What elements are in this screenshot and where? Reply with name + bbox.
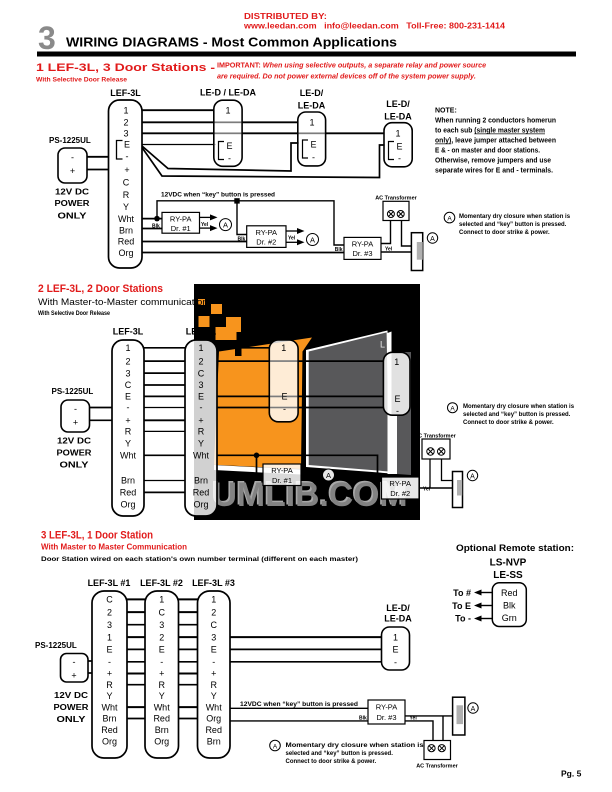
- svg-text:selected and “key” button is p: selected and “key” button is pressed.: [463, 412, 571, 418]
- svg-text:Wht: Wht: [193, 451, 210, 461]
- svg-text:Pg. 5: Pg. 5: [561, 769, 582, 779]
- svg-text:Yel: Yel: [423, 487, 431, 493]
- svg-text:Grn: Grn: [502, 613, 517, 623]
- svg-text:Red: Red: [193, 488, 210, 498]
- svg-text:Red: Red: [501, 588, 518, 598]
- svg-text:1: 1: [198, 343, 203, 353]
- svg-text:-: -: [283, 404, 286, 414]
- svg-text:Door Station wired on each sta: Door Station wired on each station's own…: [41, 556, 358, 563]
- svg-text:To -: To -: [455, 614, 471, 624]
- svg-text:Red: Red: [120, 488, 137, 498]
- svg-text:Yel: Yel: [410, 716, 418, 722]
- svg-text:A: A: [223, 221, 228, 230]
- svg-text:-: -: [312, 153, 315, 163]
- svg-text:Org: Org: [102, 736, 117, 746]
- svg-text:ONLY: ONLY: [58, 211, 88, 220]
- svg-text:selected and “key” button is p: selected and “key” button is pressed.: [459, 222, 567, 228]
- svg-text:PS-1225UL: PS-1225UL: [49, 136, 91, 145]
- svg-text:C: C: [123, 178, 130, 188]
- svg-text:L: L: [380, 340, 385, 350]
- svg-text:Blk: Blk: [335, 247, 343, 253]
- svg-text:POWER: POWER: [57, 449, 92, 458]
- svg-text:Y: Y: [125, 439, 131, 449]
- svg-text:2: 2: [198, 356, 203, 366]
- svg-text:LE-SS: LE-SS: [493, 570, 523, 581]
- svg-text:Org: Org: [154, 736, 169, 746]
- svg-text:DISTRIBUTED BY:: DISTRIBUTED BY:: [244, 12, 327, 21]
- svg-text:Blk: Blk: [503, 601, 516, 611]
- svg-text:2: 2: [159, 632, 164, 642]
- svg-text:With Selective Door Release: With Selective Door Release: [38, 310, 110, 317]
- svg-text:3 LEF-3L, 1 Door Station: 3 LEF-3L, 1 Door Station: [41, 530, 153, 542]
- svg-text:LE-DA: LE-DA: [298, 101, 326, 111]
- svg-text:2: 2: [211, 607, 216, 617]
- svg-text:Connect to door strike & power: Connect to door strike & power.: [459, 230, 550, 236]
- svg-text:E: E: [392, 645, 398, 655]
- svg-text:Yel: Yel: [385, 246, 393, 252]
- svg-text:1: 1: [395, 129, 400, 139]
- svg-text:ONLY: ONLY: [60, 461, 90, 470]
- svg-text:Otherwise, remove jumpers and: Otherwise, remove jumpers and use: [435, 158, 551, 165]
- svg-text:E: E: [159, 645, 165, 655]
- svg-text:-: -: [394, 658, 397, 668]
- svg-text:2: 2: [123, 118, 128, 128]
- svg-text:C: C: [106, 595, 113, 605]
- svg-text:Brn: Brn: [194, 476, 208, 486]
- svg-text:C: C: [158, 607, 165, 617]
- svg-text:-: -: [74, 404, 77, 414]
- svg-text:12V DC: 12V DC: [55, 188, 89, 197]
- svg-text:RY-PA: RY-PA: [170, 215, 192, 224]
- svg-text:-: -: [396, 406, 399, 416]
- svg-text:R: R: [106, 680, 113, 690]
- svg-text:A: A: [470, 473, 475, 480]
- svg-text:+: +: [198, 416, 203, 426]
- svg-text:Y: Y: [106, 691, 112, 701]
- svg-text:Dr. #2: Dr. #2: [390, 489, 410, 498]
- svg-text:C: C: [210, 620, 217, 630]
- svg-text:R: R: [123, 190, 130, 200]
- svg-text:A: A: [326, 471, 331, 480]
- svg-text:12VDC when “key” button is pre: 12VDC when “key” button is pressed: [240, 701, 358, 708]
- svg-text:12VDC when “key” button is pre: 12VDC when “key” button is pressed: [161, 192, 275, 199]
- svg-text:www.leedan.com info@leedan.c: www.leedan.com info@leedan.com Toll-Free…: [243, 22, 506, 31]
- svg-text:A: A: [447, 215, 452, 222]
- svg-text:AC Transformer: AC Transformer: [375, 195, 417, 201]
- svg-text:NOTE:: NOTE:: [435, 108, 457, 115]
- svg-text:Dr. #2: Dr. #2: [256, 238, 276, 247]
- svg-text:1: 1: [281, 343, 286, 353]
- svg-text:A: A: [273, 743, 278, 750]
- svg-text:-: -: [212, 657, 215, 667]
- svg-text:Yel: Yel: [201, 222, 209, 228]
- svg-text:R: R: [210, 680, 217, 690]
- svg-text:-: -: [126, 151, 129, 161]
- svg-text:Dr. #1: Dr. #1: [171, 224, 191, 233]
- svg-text:E & - on master and door stati: E & - on master and door stations.: [435, 148, 540, 155]
- svg-text:RY-PA: RY-PA: [352, 240, 374, 249]
- svg-text:Blk: Blk: [359, 716, 367, 722]
- svg-text:LEF-3L: LEF-3L: [110, 88, 141, 98]
- svg-text:LEF-3L #1: LEF-3L #1: [88, 578, 131, 588]
- svg-text:Brn: Brn: [119, 225, 133, 235]
- svg-text:A: A: [450, 405, 455, 412]
- svg-text:3: 3: [38, 20, 56, 56]
- svg-text:+: +: [125, 416, 130, 426]
- svg-text:Connect to door strike & power: Connect to door strike & power.: [463, 420, 554, 426]
- svg-text:IMPORTANT: When using selectiv: IMPORTANT: When using selective outputs,…: [217, 61, 486, 70]
- svg-text:1: 1: [159, 595, 164, 605]
- svg-text:E: E: [211, 645, 217, 655]
- svg-text:-: -: [73, 657, 76, 667]
- svg-text:RY-PA: RY-PA: [376, 703, 398, 712]
- svg-text:Momentary dry closure when sta: Momentary dry closure when station is: [286, 743, 425, 749]
- svg-text:Wht: Wht: [154, 702, 171, 712]
- svg-text:E: E: [396, 142, 402, 152]
- svg-text:Red: Red: [118, 237, 135, 247]
- svg-text:Yel: Yel: [288, 235, 296, 241]
- svg-text:LEF-3L #2: LEF-3L #2: [140, 578, 183, 588]
- svg-text:only), leave jumper attached b: only), leave jumper attached between: [435, 138, 556, 145]
- svg-text:LEF-3L: LEF-3L: [113, 327, 144, 337]
- svg-text:-: -: [228, 154, 231, 164]
- svg-text:12V DC: 12V DC: [57, 437, 91, 446]
- svg-text:3: 3: [159, 620, 164, 630]
- svg-text:R: R: [158, 680, 165, 690]
- svg-text:Brn: Brn: [102, 714, 116, 724]
- svg-text:LEF-3L: LEF-3L: [186, 327, 217, 337]
- svg-text:E: E: [198, 392, 204, 402]
- svg-text:With Master to Master Communic: With Master to Master Communication: [41, 543, 187, 552]
- svg-text:2: 2: [107, 607, 112, 617]
- svg-text:Blk: Blk: [152, 223, 160, 229]
- svg-text:LE-D/: LE-D/: [386, 99, 410, 109]
- svg-text:LE-DA: LE-DA: [384, 614, 412, 624]
- svg-text:-: -: [108, 657, 111, 667]
- svg-text:Blk: Blk: [238, 236, 246, 242]
- svg-text:-: -: [398, 154, 401, 164]
- svg-text:3: 3: [198, 380, 203, 390]
- svg-text:Dr. #3: Dr. #3: [352, 249, 372, 258]
- svg-text:+: +: [73, 418, 78, 428]
- svg-text:POWER: POWER: [54, 703, 89, 712]
- svg-text:Y: Y: [123, 202, 129, 212]
- svg-text:Wht: Wht: [206, 702, 223, 712]
- svg-text:+: +: [107, 669, 112, 679]
- svg-text:LE-D / LE-DA: LE-D / LE-DA: [200, 88, 256, 98]
- svg-text:Org: Org: [206, 714, 221, 724]
- svg-text:+: +: [124, 165, 129, 175]
- svg-text:Wht: Wht: [101, 702, 118, 712]
- svg-text:LE-DA: LE-DA: [384, 112, 412, 122]
- svg-text:RY-PA: RY-PA: [389, 479, 411, 488]
- svg-text:1: 1: [309, 117, 314, 127]
- svg-text:When running 2 conductors home: When running 2 conductors homerun: [435, 118, 556, 125]
- svg-text:Dr. #1: Dr. #1: [272, 476, 292, 485]
- svg-text:-: -: [71, 152, 74, 162]
- svg-text:are required. Do not power ext: are required. Do not power external devi…: [217, 72, 476, 81]
- svg-text:LS-NVP: LS-NVP: [490, 558, 527, 569]
- svg-text:-: -: [200, 403, 203, 413]
- svg-text:Momentary dry closure when sta: Momentary dry closure when station is: [459, 214, 571, 220]
- svg-text:PS-1225UL: PS-1225UL: [52, 387, 94, 396]
- svg-text:3: 3: [123, 129, 128, 139]
- svg-text:Connect to door strike & power: Connect to door strike & power.: [286, 759, 377, 765]
- svg-text:12V DC: 12V DC: [54, 691, 88, 700]
- svg-text:With Master-to-Master communic: With Master-to-Master communication: [38, 297, 208, 307]
- svg-text:AC Transformer: AC Transformer: [416, 764, 458, 770]
- svg-text:RY-PA: RY-PA: [271, 466, 293, 475]
- svg-text:Org: Org: [193, 500, 208, 510]
- svg-text:R: R: [198, 427, 205, 437]
- svg-text:E: E: [394, 394, 400, 404]
- svg-text:1: 1: [107, 632, 112, 642]
- svg-text:E: E: [125, 392, 131, 402]
- svg-text:1: 1: [225, 105, 230, 115]
- svg-text:ONLY: ONLY: [57, 715, 87, 724]
- svg-text:1: 1: [125, 343, 130, 353]
- svg-text:3: 3: [107, 620, 112, 630]
- svg-text:3: 3: [211, 632, 216, 642]
- svg-text:With Selective Door Release: With Selective Door Release: [36, 77, 127, 84]
- svg-text:POWER: POWER: [55, 199, 90, 208]
- svg-text:Y: Y: [198, 439, 204, 449]
- svg-text:Y: Y: [211, 691, 217, 701]
- svg-text:AC Transformer: AC Transformer: [414, 433, 456, 439]
- svg-text:Wht: Wht: [120, 451, 137, 461]
- svg-text:Org: Org: [118, 248, 133, 258]
- svg-text:-: -: [127, 403, 130, 413]
- svg-text:WIRING DIAGRAMS - Most Common: WIRING DIAGRAMS - Most Common Applicatio…: [66, 35, 397, 50]
- svg-text:Brn: Brn: [121, 476, 135, 486]
- svg-text:A: A: [310, 236, 315, 245]
- svg-text:E: E: [106, 645, 112, 655]
- svg-text:To E: To E: [452, 601, 471, 611]
- svg-text:C: C: [125, 380, 132, 390]
- svg-text:3: 3: [125, 368, 130, 378]
- svg-text:Optional Remote station:: Optional Remote station:: [456, 543, 574, 554]
- svg-text:R: R: [125, 427, 132, 437]
- svg-text:LEF-3L #3: LEF-3L #3: [192, 578, 235, 588]
- svg-text:+: +: [71, 671, 76, 681]
- svg-text:Org: Org: [120, 500, 135, 510]
- svg-text:1 LEF-3L, 3 Door Stations -: 1 LEF-3L, 3 Door Stations -: [36, 62, 215, 74]
- svg-text:C: C: [198, 368, 205, 378]
- svg-text:1: 1: [394, 357, 399, 367]
- svg-text:Red: Red: [205, 725, 222, 735]
- svg-text:A: A: [471, 706, 476, 713]
- svg-text:E: E: [124, 140, 130, 150]
- svg-text:separate wires for E and - ter: separate wires for E and - terminals.: [435, 168, 553, 175]
- svg-text:LE-D/: LE-D/: [386, 603, 410, 613]
- svg-text:Wht: Wht: [118, 214, 135, 224]
- svg-text:Brn: Brn: [207, 736, 221, 746]
- svg-text:Red: Red: [153, 714, 170, 724]
- svg-text:Dr. #3: Dr. #3: [376, 713, 396, 722]
- svg-text:E: E: [310, 140, 316, 150]
- svg-text:2: 2: [125, 356, 130, 366]
- svg-text:E: E: [226, 141, 232, 151]
- svg-text:+: +: [70, 166, 75, 176]
- svg-text:Brn: Brn: [155, 725, 169, 735]
- svg-text:PS-1225UL: PS-1225UL: [35, 641, 77, 650]
- svg-text:-: -: [160, 657, 163, 667]
- svg-text:selected and “key” button is p: selected and “key” button is pressed.: [286, 751, 394, 757]
- svg-text:2 LEF-3L, 2 Door Stations: 2 LEF-3L, 2 Door Stations: [38, 283, 163, 295]
- svg-text:1: 1: [123, 105, 128, 115]
- svg-text:A: A: [430, 236, 435, 243]
- svg-text:+: +: [211, 669, 216, 679]
- svg-text:1: 1: [393, 633, 398, 643]
- svg-text:RY-PA: RY-PA: [256, 228, 278, 237]
- svg-text:to each sub (single master sys: to each sub (single master system: [435, 128, 545, 135]
- svg-text:LE-D/: LE-D/: [300, 88, 324, 98]
- svg-text:To #: To #: [453, 588, 471, 598]
- svg-text:Y: Y: [159, 691, 165, 701]
- svg-text:Momentary dry closure when sta: Momentary dry closure when station is: [463, 404, 575, 410]
- svg-text:+: +: [159, 669, 164, 679]
- svg-text:Red: Red: [101, 725, 118, 735]
- svg-text:1: 1: [211, 595, 216, 605]
